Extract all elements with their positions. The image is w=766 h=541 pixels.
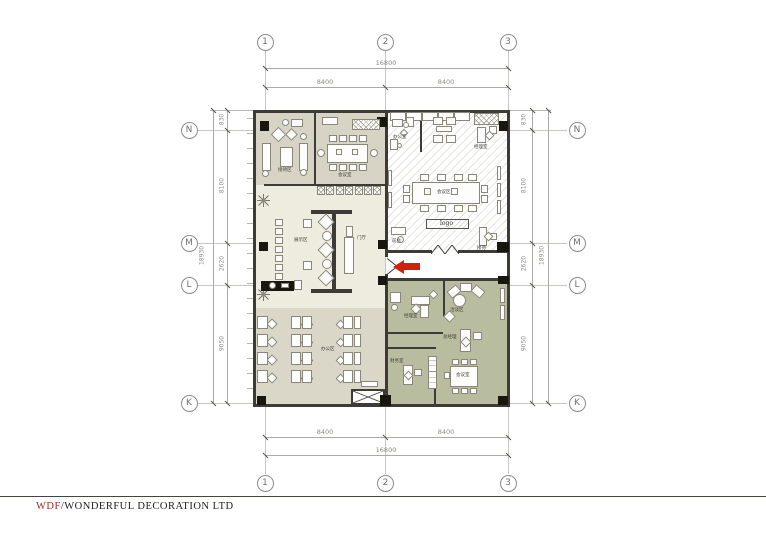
grid-bubble-col1-bottom: 1 bbox=[257, 475, 274, 492]
wall bbox=[388, 347, 436, 349]
dim-left-s2: 8100 bbox=[219, 168, 226, 204]
grid-bubble-row-k-right: K bbox=[569, 395, 586, 412]
grid-bubble-col3-top: 3 bbox=[500, 34, 517, 51]
furniture bbox=[433, 117, 443, 125]
mullion-dash bbox=[247, 238, 253, 239]
room-label-lounge: 洽谈区 bbox=[450, 309, 464, 314]
furniture bbox=[388, 170, 392, 186]
grid-bubble-row-k-left: K bbox=[181, 395, 198, 412]
furniture bbox=[403, 185, 410, 193]
furniture bbox=[446, 135, 456, 143]
furniture bbox=[299, 143, 308, 171]
furniture bbox=[437, 174, 446, 181]
mullion-dash bbox=[247, 298, 253, 299]
grid-bubble-row-n-left: N bbox=[181, 122, 198, 139]
mullion-dash bbox=[247, 148, 253, 149]
display-x-chair bbox=[355, 186, 363, 195]
furniture bbox=[275, 219, 283, 226]
desk bbox=[343, 334, 353, 347]
display-x-chair bbox=[336, 186, 344, 195]
dim-line-left-seg bbox=[227, 110, 228, 403]
furniture bbox=[275, 255, 283, 262]
desk bbox=[291, 370, 301, 383]
red-arrow-icon-body bbox=[404, 263, 420, 270]
mullion-dash bbox=[247, 163, 253, 164]
wall bbox=[385, 274, 388, 404]
grid-bubble-col2-bottom: 2 bbox=[377, 475, 394, 492]
grid-bubble-row-l-left: L bbox=[181, 277, 198, 294]
footer-rule bbox=[0, 496, 766, 497]
furniture-round bbox=[391, 304, 398, 311]
furniture bbox=[473, 332, 482, 340]
dim-extension-left bbox=[210, 110, 255, 111]
display-x-chair bbox=[317, 186, 325, 195]
wall bbox=[388, 250, 432, 253]
furniture bbox=[349, 135, 357, 142]
mullion-dash bbox=[247, 313, 253, 314]
desk bbox=[354, 334, 361, 347]
furniture bbox=[303, 219, 312, 228]
furniture bbox=[481, 195, 488, 203]
grid-bubble-row-m-right: M bbox=[569, 235, 586, 252]
furniture-round bbox=[322, 259, 332, 269]
furniture-round bbox=[370, 149, 378, 157]
furniture bbox=[420, 174, 429, 181]
room-label-conference: 会议室 bbox=[338, 174, 352, 179]
furniture bbox=[433, 135, 443, 143]
furniture-round bbox=[317, 149, 325, 157]
furniture bbox=[275, 237, 283, 244]
furniture bbox=[339, 164, 347, 171]
furniture bbox=[420, 305, 429, 318]
desk bbox=[257, 334, 268, 347]
furniture bbox=[275, 264, 283, 271]
dim-right-s3: 2620 bbox=[521, 246, 528, 282]
cabinet-x bbox=[474, 113, 499, 125]
dim-line-right-seg bbox=[532, 110, 533, 403]
furniture bbox=[424, 188, 431, 195]
column bbox=[261, 281, 294, 291]
mullion-dash bbox=[247, 358, 253, 359]
furniture bbox=[346, 226, 353, 237]
desk bbox=[354, 316, 361, 329]
furniture bbox=[454, 174, 463, 181]
furniture bbox=[280, 147, 293, 167]
display-x-chair bbox=[364, 186, 372, 195]
grid-bubble-row-l-right: L bbox=[569, 277, 586, 294]
room-label-gm: 总经理 bbox=[443, 336, 457, 341]
furniture bbox=[470, 359, 477, 365]
plant-icon bbox=[256, 193, 271, 208]
furniture bbox=[497, 166, 501, 180]
room-label-reception: 接待区 bbox=[278, 169, 292, 174]
furniture bbox=[352, 149, 358, 155]
mullion-dash bbox=[247, 343, 253, 344]
grid-bubble-row-n-right: N bbox=[569, 122, 586, 139]
dim-top-left: 8400 bbox=[295, 78, 355, 86]
mullion-dash bbox=[247, 388, 253, 389]
footer: WDF/WONDERFUL DECORATION LTD bbox=[36, 501, 234, 512]
furniture bbox=[303, 261, 312, 270]
grid-bubble-col2-top: 2 bbox=[377, 34, 394, 51]
furniture-round bbox=[282, 119, 289, 126]
furniture-round bbox=[262, 170, 269, 177]
furniture bbox=[500, 305, 505, 320]
room-label-multi: 会议区 bbox=[437, 191, 451, 196]
mullion-dash bbox=[247, 193, 253, 194]
furniture bbox=[262, 143, 271, 171]
furniture bbox=[461, 359, 468, 365]
mullion-dash bbox=[247, 283, 253, 284]
dim-extension-right bbox=[509, 110, 551, 111]
furniture bbox=[291, 119, 303, 127]
furniture bbox=[391, 227, 406, 235]
dim-left-total: 18930 bbox=[199, 238, 206, 274]
furniture-round bbox=[453, 294, 466, 307]
dim-left-s3: 2620 bbox=[219, 246, 226, 282]
dim-bottom-right: 8400 bbox=[416, 428, 476, 436]
desk bbox=[302, 316, 312, 329]
furniture bbox=[481, 185, 488, 193]
wall bbox=[253, 110, 256, 407]
furniture bbox=[339, 135, 347, 142]
desk bbox=[354, 370, 361, 383]
furniture bbox=[468, 205, 477, 212]
desk bbox=[302, 334, 312, 347]
furniture bbox=[359, 135, 367, 142]
desk bbox=[257, 352, 268, 365]
desk bbox=[302, 370, 312, 383]
dim-bottom-left: 8400 bbox=[295, 428, 355, 436]
wall bbox=[388, 332, 443, 334]
furniture bbox=[468, 174, 477, 181]
furniture bbox=[444, 372, 450, 379]
double-door-icon bbox=[431, 245, 459, 254]
furniture bbox=[454, 205, 463, 212]
furniture bbox=[461, 388, 468, 394]
furniture bbox=[275, 246, 283, 253]
wall bbox=[388, 278, 507, 281]
grid-bubble-col1-top: 1 bbox=[257, 34, 274, 51]
mullion-dash bbox=[247, 268, 253, 269]
desk bbox=[354, 352, 361, 365]
furniture bbox=[329, 164, 337, 171]
mullion-dash bbox=[247, 328, 253, 329]
room-label-meeting2: 会议室 bbox=[456, 374, 470, 379]
wall bbox=[311, 210, 352, 214]
desk bbox=[343, 316, 353, 329]
furniture bbox=[344, 237, 354, 274]
room-label-front: 前台 bbox=[392, 240, 401, 245]
furniture bbox=[294, 280, 302, 290]
furniture bbox=[437, 205, 446, 212]
furniture bbox=[500, 288, 505, 303]
furniture-round bbox=[322, 231, 332, 241]
wall bbox=[314, 113, 316, 185]
furniture bbox=[359, 164, 367, 171]
furniture-round bbox=[403, 122, 409, 128]
furniture-round bbox=[300, 169, 307, 176]
floor-green-suite bbox=[388, 281, 507, 404]
desk bbox=[343, 352, 353, 365]
dim-right-total: 18930 bbox=[539, 238, 546, 274]
column bbox=[257, 396, 266, 405]
cabinet-x bbox=[352, 119, 380, 130]
wall bbox=[311, 289, 352, 293]
desk bbox=[291, 334, 301, 347]
furniture bbox=[403, 195, 410, 203]
mullion-dash bbox=[247, 133, 253, 134]
display-x-chair bbox=[373, 186, 381, 195]
dim-line-left-total bbox=[213, 110, 214, 403]
furniture bbox=[446, 117, 456, 125]
furniture bbox=[436, 126, 452, 132]
furniture bbox=[414, 369, 422, 376]
furniture bbox=[275, 273, 283, 280]
floor-plan-canvas: 1 2 3 1 2 3 N M L K N M L K 16800 8400 8… bbox=[0, 0, 766, 541]
mullion-dash bbox=[247, 253, 253, 254]
dim-right-s1: 830 bbox=[521, 102, 528, 138]
furniture bbox=[322, 117, 338, 125]
wall bbox=[443, 281, 445, 317]
column bbox=[498, 396, 508, 405]
display-x-chair bbox=[326, 186, 334, 195]
furniture-round bbox=[269, 282, 276, 289]
room-label-office: 办公区 bbox=[321, 348, 335, 353]
desk bbox=[343, 370, 353, 383]
room-label-manager: 经理室 bbox=[404, 315, 418, 320]
mullion-dash bbox=[247, 178, 253, 179]
dim-top-right: 8400 bbox=[416, 78, 476, 86]
desk bbox=[291, 352, 301, 365]
dim-line-bottom-total bbox=[265, 455, 508, 456]
dim-right-s4: 9050 bbox=[521, 326, 528, 362]
furniture bbox=[361, 381, 378, 387]
furniture bbox=[392, 119, 403, 127]
column bbox=[380, 395, 391, 406]
display-x-chair bbox=[345, 186, 353, 195]
footer-brand: WDF bbox=[36, 501, 61, 512]
desk bbox=[302, 352, 312, 365]
furniture bbox=[275, 228, 283, 235]
column bbox=[499, 121, 508, 131]
furniture bbox=[470, 388, 477, 394]
furniture bbox=[281, 283, 289, 288]
furniture bbox=[390, 292, 401, 303]
furniture-round bbox=[397, 143, 402, 148]
desk bbox=[257, 370, 268, 383]
cabinet bbox=[428, 356, 437, 389]
wall bbox=[253, 110, 510, 113]
room-label-finance: 财务室 bbox=[390, 360, 404, 365]
furniture bbox=[336, 149, 342, 155]
mullion-dash bbox=[247, 208, 253, 209]
dim-line-right-total bbox=[548, 110, 549, 403]
room-label-logo: logo bbox=[440, 220, 453, 227]
furniture bbox=[454, 112, 470, 121]
wall bbox=[507, 110, 510, 407]
furniture-round bbox=[300, 133, 307, 140]
red-arrow-icon-head bbox=[393, 260, 404, 274]
furniture bbox=[497, 200, 501, 214]
furniture bbox=[452, 359, 459, 365]
column bbox=[260, 121, 269, 131]
grid-bubble-row-m-left: M bbox=[181, 235, 198, 252]
column bbox=[498, 276, 509, 284]
furniture bbox=[451, 188, 458, 195]
footer-company: WONDERFUL DECORATION LTD bbox=[64, 501, 233, 512]
column bbox=[378, 240, 387, 249]
dim-top-total: 16800 bbox=[356, 59, 416, 67]
furniture bbox=[452, 388, 459, 394]
column bbox=[497, 242, 509, 252]
room-label-showroom: 展示区 bbox=[294, 239, 308, 244]
furniture bbox=[497, 183, 501, 197]
dim-right-s2: 8100 bbox=[521, 168, 528, 204]
furniture bbox=[327, 144, 368, 163]
room-label-office-small: 办公室 bbox=[393, 136, 407, 141]
furniture bbox=[388, 192, 392, 208]
column bbox=[259, 242, 268, 251]
room-label-manager-small: 经理室 bbox=[474, 146, 488, 151]
mullion-dash bbox=[247, 118, 253, 119]
furniture bbox=[420, 205, 429, 212]
desk bbox=[257, 316, 268, 329]
dim-left-s4: 9050 bbox=[219, 326, 226, 362]
column bbox=[378, 276, 387, 285]
furniture bbox=[349, 164, 357, 171]
mullion-dash bbox=[247, 373, 253, 374]
dim-bottom-total: 16800 bbox=[356, 446, 416, 454]
room-label-reception-small: 接待 bbox=[477, 247, 486, 252]
mullion-dash bbox=[247, 223, 253, 224]
desk bbox=[291, 316, 301, 329]
dim-line-top-total bbox=[265, 68, 508, 69]
room-label-hall: 门厅 bbox=[357, 237, 366, 242]
furniture bbox=[329, 135, 337, 142]
grid-bubble-col3-bottom: 3 bbox=[500, 475, 517, 492]
